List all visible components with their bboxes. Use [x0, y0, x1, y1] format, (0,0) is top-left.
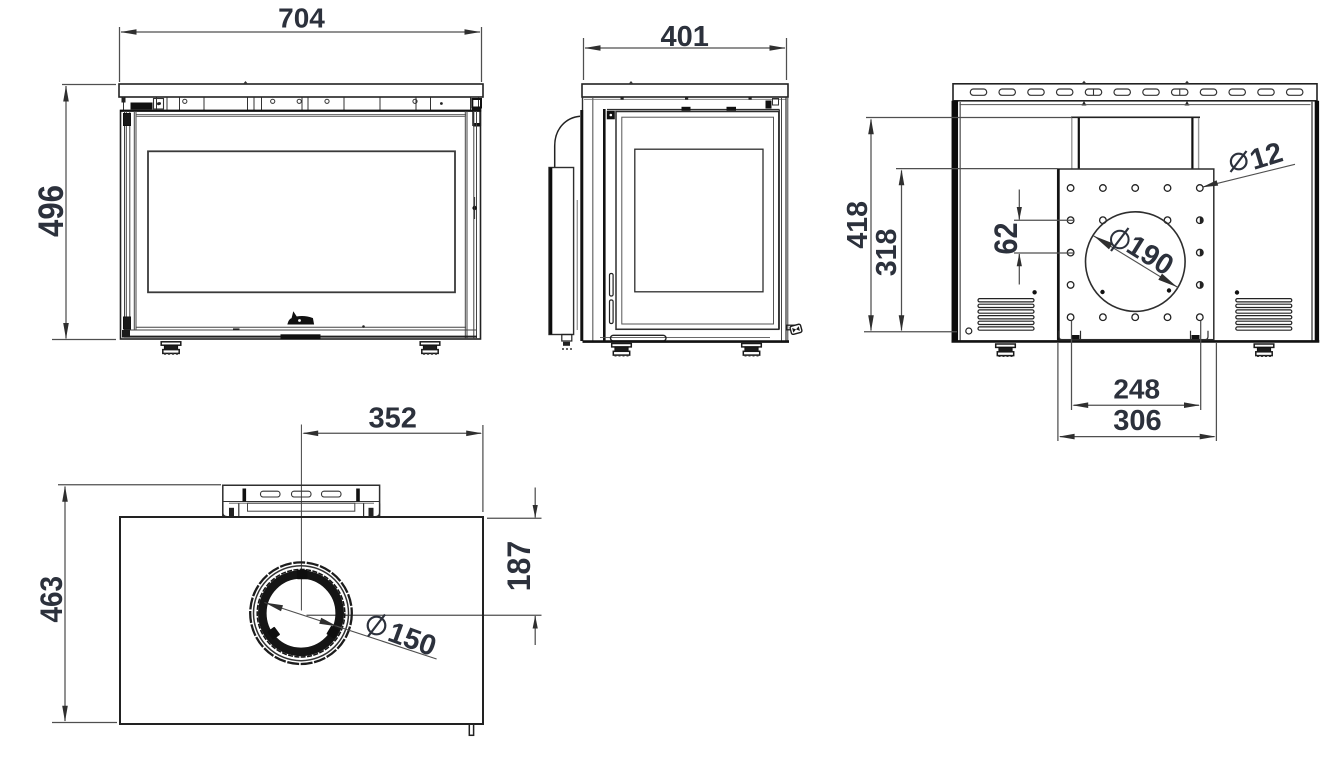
svg-text:318: 318 — [871, 229, 903, 277]
svg-text:352: 352 — [369, 402, 417, 434]
svg-text:463: 463 — [33, 576, 69, 623]
svg-text:418: 418 — [842, 201, 874, 249]
svg-text:187: 187 — [501, 541, 537, 592]
svg-text:496: 496 — [32, 185, 71, 237]
svg-text:306: 306 — [1113, 405, 1161, 437]
svg-text:401: 401 — [661, 21, 709, 53]
svg-text:248: 248 — [1113, 373, 1160, 404]
svg-text:704: 704 — [278, 3, 325, 34]
svg-text:62: 62 — [988, 223, 1024, 255]
